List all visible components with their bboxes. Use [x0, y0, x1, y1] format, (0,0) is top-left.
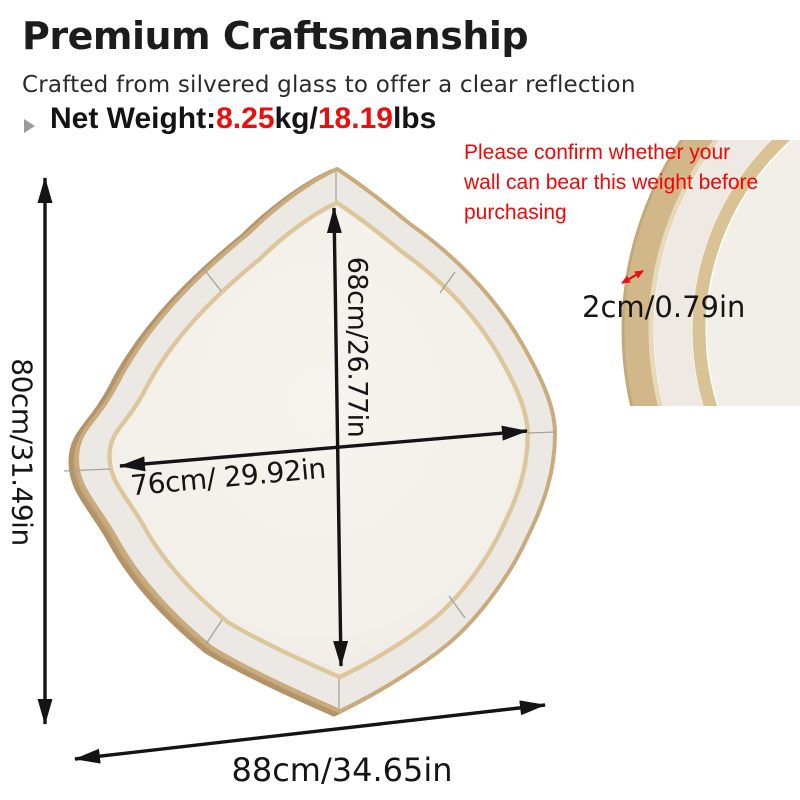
warning-line-1: Please confirm whether your: [464, 138, 800, 168]
net-weight-lbs-value: 18.19: [318, 102, 393, 135]
inner-height-label: 68cm/26.77in: [342, 257, 373, 438]
net-weight-lbs-unit: lbs: [393, 102, 436, 135]
frame-thickness-closeup: [622, 0, 800, 667]
overall-height-label: 80cm/31.49in: [6, 358, 39, 545]
page-title: Premium Craftsmanship: [22, 14, 528, 58]
warning-line-3: purchasing: [464, 198, 800, 228]
net-weight-label: Net Weight:: [50, 102, 216, 135]
warning-line-2: wall can bear this weight before: [464, 168, 800, 198]
arabesque-mirror: [64, 169, 556, 714]
net-weight-kg-unit: kg/: [275, 102, 318, 135]
product-dimension-infographic: Premium Craftsmanship Crafted from silve…: [0, 0, 800, 800]
net-weight-line: Net Weight:8.25kg/18.19lbs: [50, 102, 436, 136]
frame-thickness-label: 2cm/0.79in: [582, 290, 745, 324]
net-weight-kg-value: 8.25: [216, 102, 274, 135]
overall-width-label: 88cm/34.65in: [231, 751, 452, 789]
bullet-triangle-icon: [24, 119, 35, 133]
page-subtitle: Crafted from silvered glass to offer a c…: [22, 72, 636, 98]
weight-warning-note: Please confirm whether your wall can bea…: [464, 138, 800, 228]
